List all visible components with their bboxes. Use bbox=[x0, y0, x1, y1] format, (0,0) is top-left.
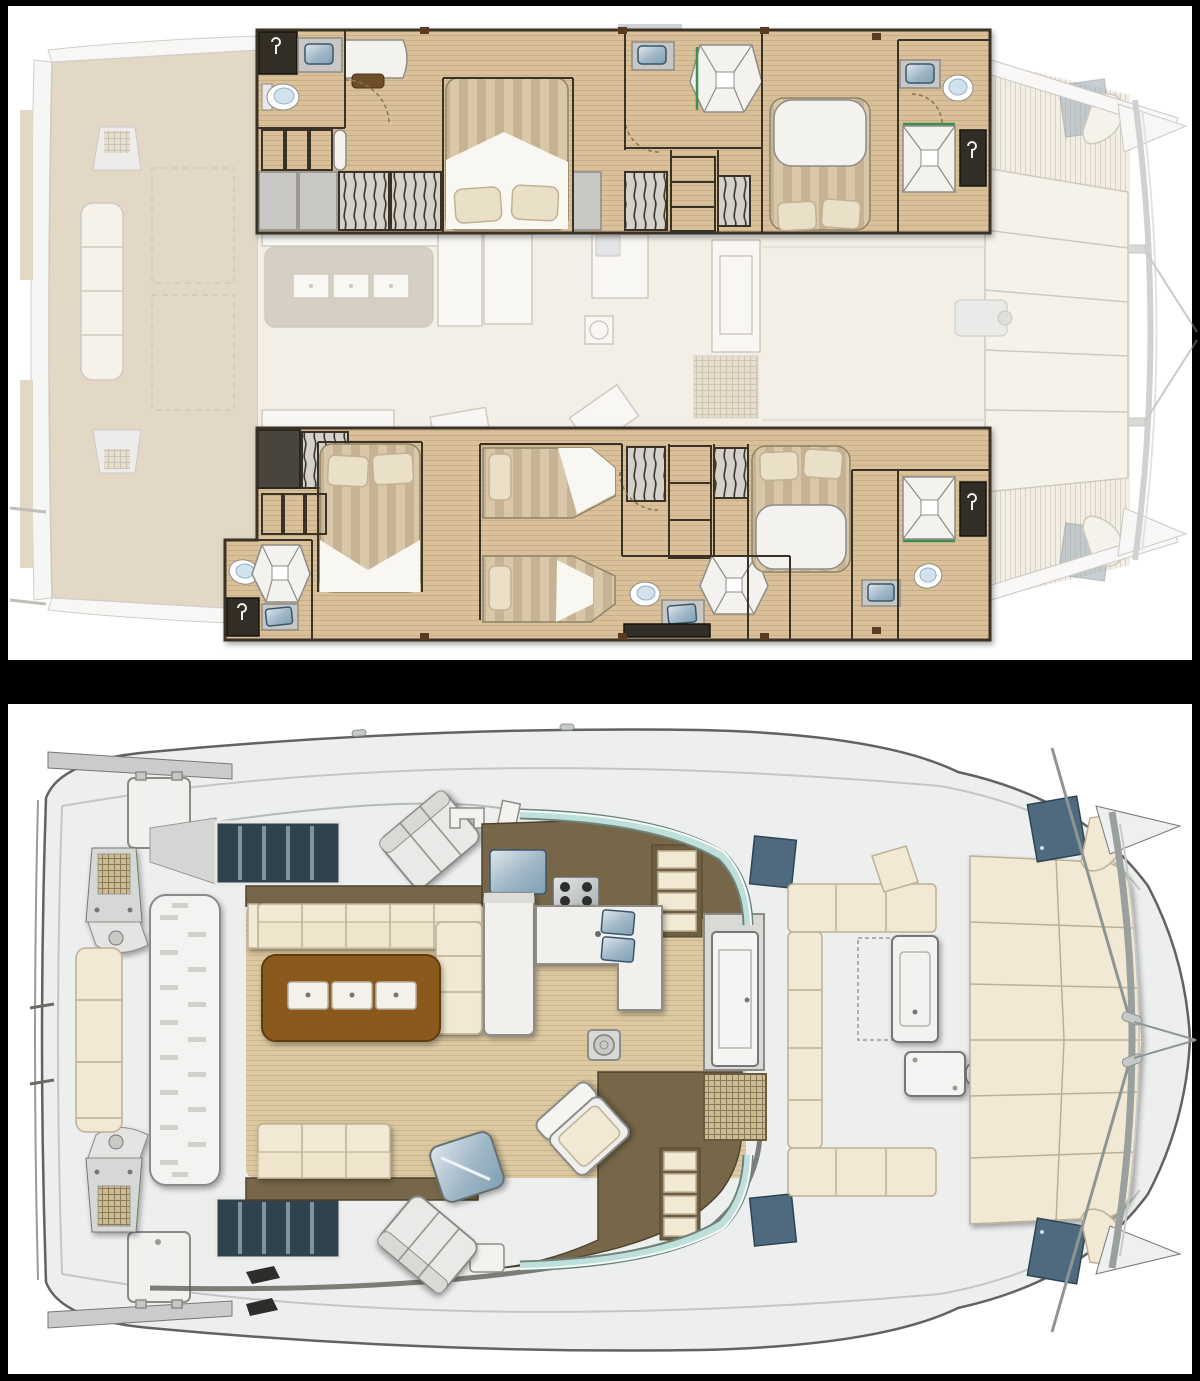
fwd-door-ghost bbox=[712, 240, 760, 352]
pillow bbox=[803, 449, 843, 480]
catamaran-deck-plans bbox=[0, 0, 1200, 1381]
galley-island bbox=[484, 893, 534, 1035]
side-window-port bbox=[216, 822, 340, 884]
sink bbox=[667, 604, 696, 624]
aft-cabin-bed-stbd bbox=[320, 444, 420, 592]
pillow bbox=[372, 453, 414, 485]
sink bbox=[868, 584, 894, 601]
sink bbox=[265, 607, 293, 627]
desk bbox=[345, 40, 407, 78]
transom-bench bbox=[76, 948, 122, 1132]
lower-deck-plan bbox=[10, 24, 1197, 640]
pillow bbox=[489, 566, 511, 610]
port-transom-step bbox=[20, 110, 33, 280]
davit-port-ghost bbox=[93, 127, 141, 170]
pillow bbox=[454, 186, 502, 223]
rail-cleat bbox=[560, 724, 574, 730]
galley-sink bbox=[601, 910, 635, 936]
roller-wardrobe bbox=[391, 172, 441, 230]
engine-hatch-stbd bbox=[128, 1232, 190, 1308]
steps-shelves-stbd bbox=[660, 1148, 700, 1240]
galley-island-ghost bbox=[484, 226, 532, 324]
woven-mat bbox=[704, 1074, 766, 1140]
pillow bbox=[760, 451, 799, 480]
fwd-door-console bbox=[892, 936, 938, 1042]
foredeck-sunpads bbox=[970, 856, 1142, 1224]
bow-hatch-stbd bbox=[1027, 1218, 1086, 1284]
hull-entry-door bbox=[704, 914, 764, 1070]
sofa-stbd bbox=[258, 1124, 390, 1178]
tray-ghosts bbox=[293, 274, 409, 298]
main-deck-plan bbox=[30, 724, 1196, 1351]
sofa-plinth bbox=[246, 886, 482, 906]
cockpit-table bbox=[150, 895, 220, 1185]
galley-sink bbox=[601, 937, 635, 963]
sink bbox=[638, 46, 666, 64]
pillow bbox=[777, 201, 816, 231]
aft-cabin-double-bed bbox=[446, 78, 568, 230]
deck-hatch bbox=[750, 836, 797, 888]
fwd-cabin-bed-stbd bbox=[752, 446, 850, 572]
bow-hatch-port bbox=[1027, 796, 1086, 862]
stbd-transom-step bbox=[20, 380, 33, 568]
floor-hatch-ghost bbox=[585, 316, 613, 344]
pillow bbox=[821, 199, 861, 230]
toilet bbox=[262, 84, 299, 110]
pillow bbox=[489, 454, 511, 500]
side-window-stbd bbox=[216, 1198, 340, 1258]
fwd-cabin-double-bed bbox=[770, 98, 870, 231]
galley-module bbox=[490, 850, 546, 894]
sink bbox=[906, 64, 934, 83]
sink bbox=[305, 44, 333, 64]
mat-ghost bbox=[694, 356, 758, 418]
pillow bbox=[511, 185, 559, 221]
salon-table bbox=[262, 955, 440, 1041]
floor-hatch bbox=[588, 1030, 620, 1060]
deck-hatch bbox=[750, 1194, 797, 1246]
rail-cleat bbox=[352, 729, 367, 736]
port-hull-cabins bbox=[257, 27, 990, 233]
davit-stbd-ghost bbox=[93, 430, 141, 473]
roller-wardrobe bbox=[339, 172, 389, 230]
stbd-hull-cabins bbox=[225, 428, 990, 640]
pillow bbox=[327, 455, 369, 487]
deck-plan-drawing bbox=[0, 0, 1200, 1381]
